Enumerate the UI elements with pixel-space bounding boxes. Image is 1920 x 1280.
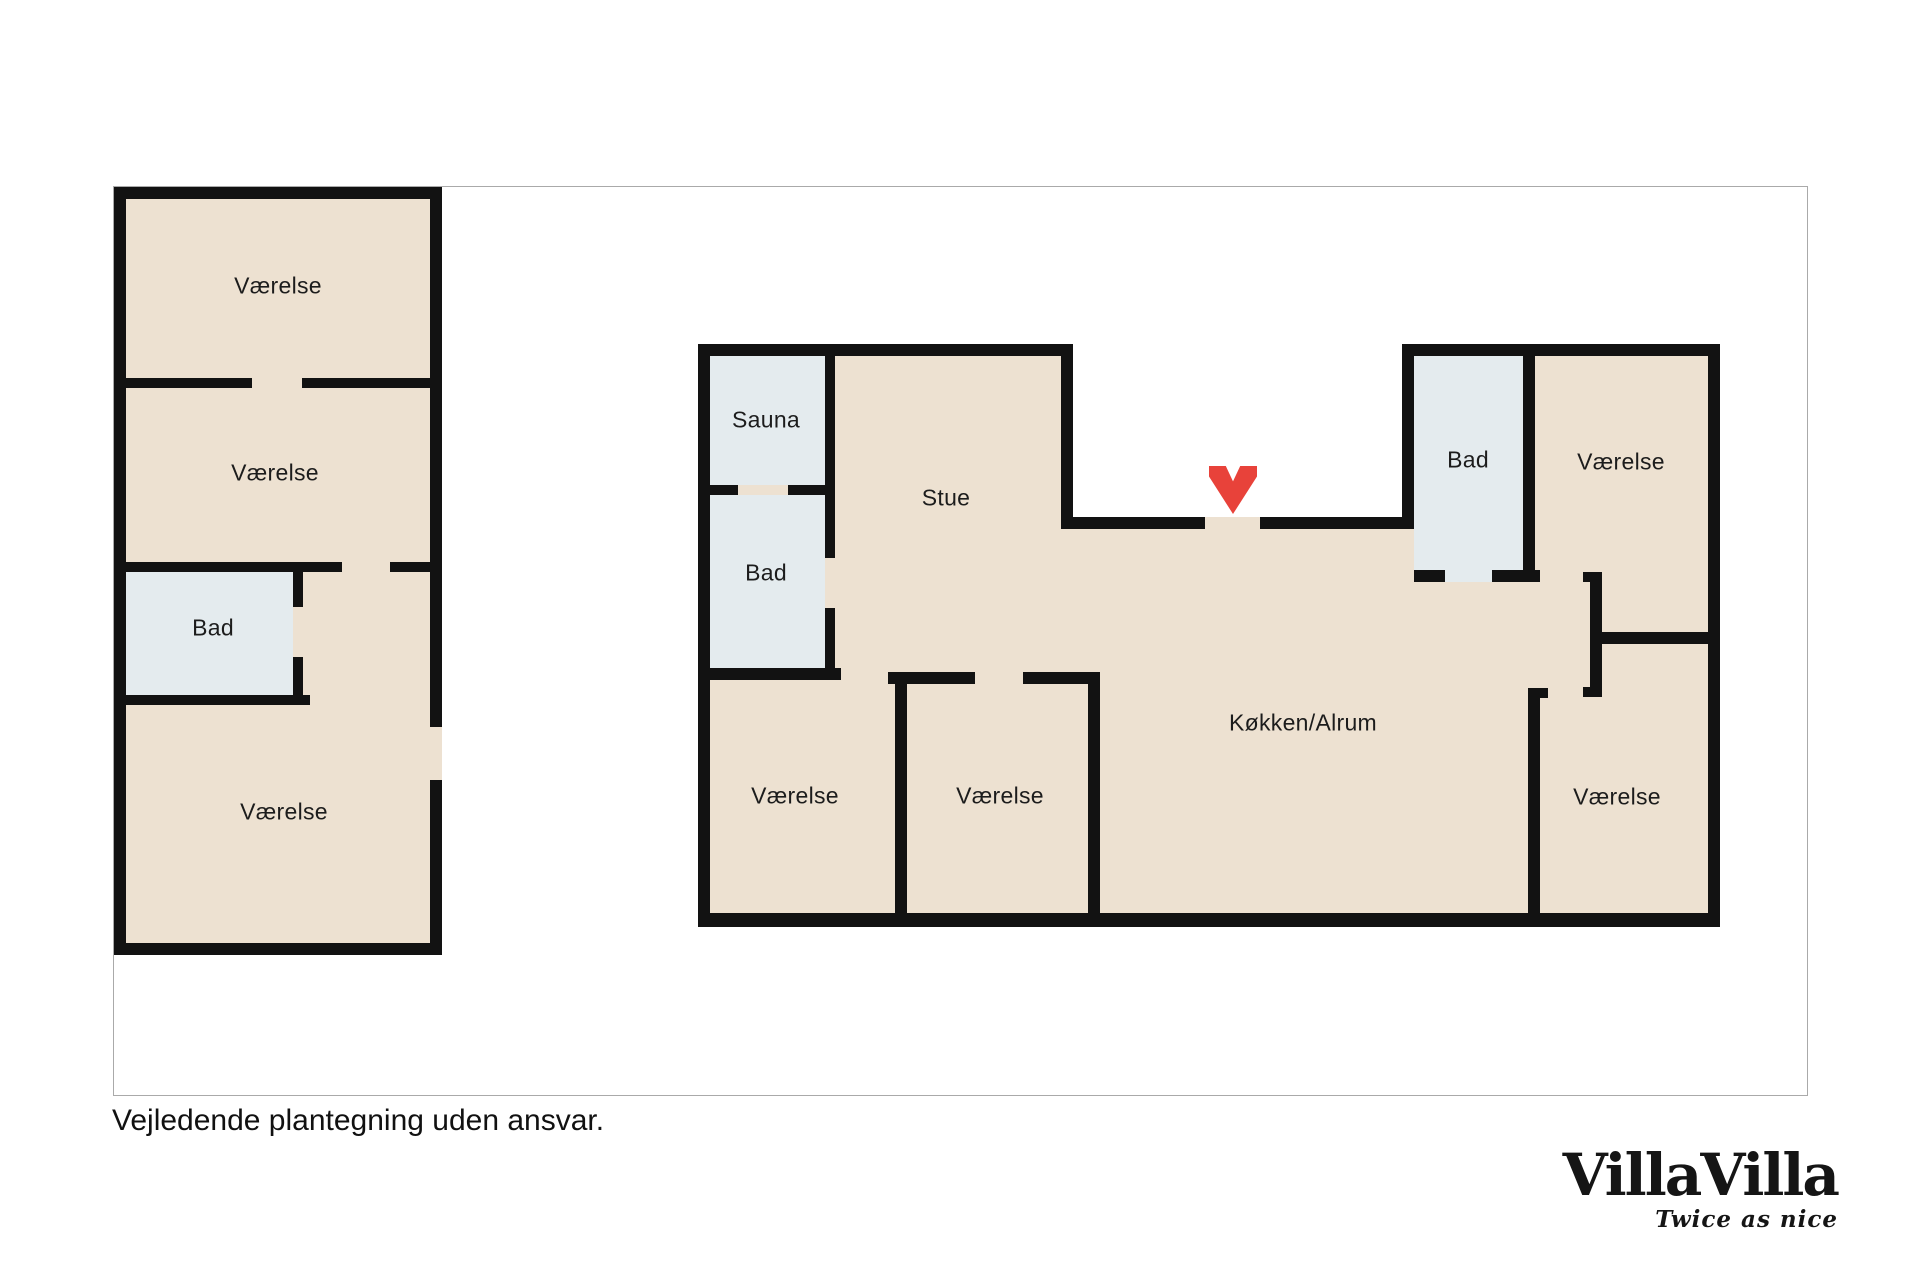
room-label: Værelse	[1573, 784, 1661, 811]
room-label: Værelse	[240, 799, 328, 826]
room-label: Køkken/Alrum	[1229, 710, 1377, 737]
brand-logo-title: VillaVilla	[1563, 1146, 1838, 1204]
room-label: Bad	[745, 560, 787, 587]
room-label: Stue	[922, 485, 971, 512]
room-label: Bad	[192, 615, 234, 642]
plan-caption: Vejledende plantegning uden ansvar.	[112, 1104, 604, 1138]
room-label: Sauna	[732, 407, 800, 434]
room-label: Værelse	[956, 783, 1044, 810]
annex-exterior-door-opening	[430, 727, 442, 780]
room-label: Værelse	[1577, 449, 1665, 476]
room-label: Værelse	[751, 783, 839, 810]
room-label: Bad	[1447, 447, 1489, 474]
brand-logo-tagline: Twice as nice	[1563, 1206, 1838, 1233]
brand-logo: VillaVilla Twice as nice	[1563, 1146, 1838, 1233]
room-label: Værelse	[231, 460, 319, 487]
floorplan-canvas: Værelse Værelse Bad Værelse	[0, 0, 1920, 1280]
room-label: Værelse	[234, 273, 322, 300]
